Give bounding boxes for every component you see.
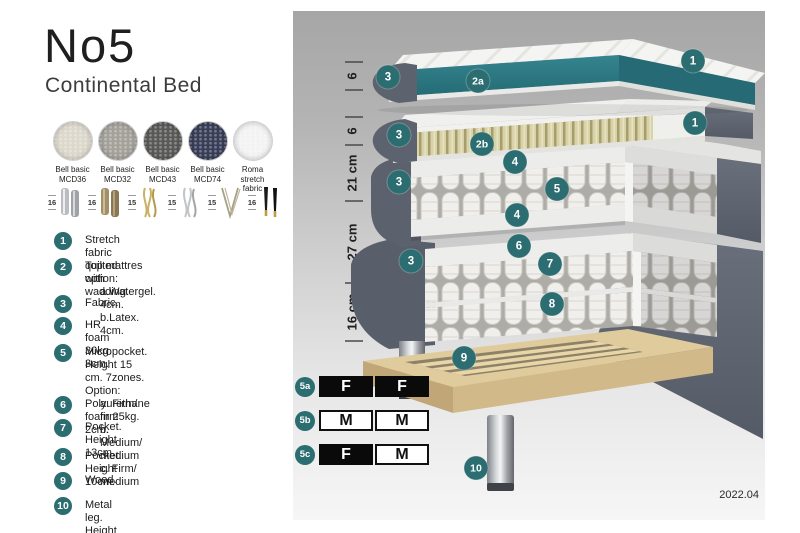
list-item: 9Wood. xyxy=(54,472,117,490)
measurement-label: 21 cm xyxy=(344,155,359,192)
firmness-cell: M xyxy=(375,410,429,431)
firmness-cell: F xyxy=(319,376,373,397)
fabric-swatch: Bell basicMCD74 xyxy=(185,121,230,194)
badge-label: 1 xyxy=(690,56,697,68)
list-item: 10Metal leg. Height 16cm. xyxy=(54,497,117,533)
fabric-swatch: Romastretch fabric xyxy=(230,121,275,194)
page-subtitle: Continental Bed xyxy=(45,74,202,98)
firmness-bar: MM xyxy=(319,410,429,431)
fabric-swatch: Bell basicMCD36 xyxy=(50,121,95,194)
leg-option: 16 xyxy=(46,185,86,219)
badge-label: 4 xyxy=(512,157,519,169)
list-item-number: 7 xyxy=(54,419,72,437)
list-item-number: 4 xyxy=(54,317,72,335)
twisted-gold-leg-icon xyxy=(138,185,164,219)
list-item-number: 1 xyxy=(54,232,72,250)
leg-options-row: 161615151516 xyxy=(46,185,286,219)
badge-label: 3 xyxy=(385,72,391,84)
leg-height: 16 xyxy=(46,193,58,212)
leg-height: 15 xyxy=(206,193,218,212)
firmness-table: 5aFF5bMM5cFM xyxy=(295,376,429,465)
badge-label: 3 xyxy=(408,256,414,268)
firmness-cell: M xyxy=(319,410,373,431)
firmness-row-badge: 5b xyxy=(295,411,315,431)
firmness-cell: F xyxy=(319,444,373,465)
leg-option: 15 xyxy=(126,185,166,219)
firmness-row-badge: 5c xyxy=(295,445,315,465)
list-item-number: 9 xyxy=(54,472,72,490)
list-item-text: Wood. xyxy=(85,472,117,490)
badge-label: 1 xyxy=(692,118,699,130)
firmness-row: 5aFF xyxy=(295,376,429,397)
list-item-number: 3 xyxy=(54,295,72,313)
leg-option: 16 xyxy=(246,185,286,219)
measurement-label: 6 xyxy=(344,127,359,134)
badge-label: 2b xyxy=(476,138,488,150)
list-item-number: 8 xyxy=(54,448,72,466)
list-item: 3Fabric. xyxy=(54,295,119,313)
firmness-row: 5cFM xyxy=(295,444,429,465)
list-item-number: 6 xyxy=(54,396,72,414)
list-item-number: 5 xyxy=(54,344,72,362)
badge-label: 5 xyxy=(554,184,561,196)
leg-height: 15 xyxy=(166,193,178,212)
badge-label: 8 xyxy=(549,299,556,311)
twisted-silver-leg-icon xyxy=(178,185,204,219)
front-metal-leg xyxy=(487,415,514,491)
firmness-bar: FF xyxy=(319,376,429,397)
fabric-swatch: Bell basicMCD43 xyxy=(140,121,185,194)
fabric-swatch-label: Bell basicMCD43 xyxy=(145,165,179,184)
tapered-black-gold-leg-icon xyxy=(258,185,284,219)
badge-label: 3 xyxy=(396,177,402,189)
bed-cutaway-panel: 6621 cm27 cm16 cm xyxy=(293,11,765,520)
fabric-swatch-circle xyxy=(233,121,273,161)
page-title: No5 xyxy=(44,18,136,73)
badge-label: 7 xyxy=(547,259,553,271)
fabric-swatch-circle xyxy=(98,121,138,161)
badge-label: 10 xyxy=(470,462,482,474)
measurement-label: 6 xyxy=(344,72,359,79)
list-item-text: Fabric. xyxy=(85,295,119,313)
hairpin-leg-icon xyxy=(218,185,244,219)
firmness-cell: M xyxy=(375,444,429,465)
leg-option: 15 xyxy=(166,185,206,219)
fabric-swatch-label: Bell basicMCD32 xyxy=(100,165,134,184)
leg-option: 16 xyxy=(86,185,126,219)
list-item-number: 2 xyxy=(54,258,72,276)
leg-height: 15 xyxy=(126,193,138,212)
firmness-bar: FM xyxy=(319,444,429,465)
firmness-cell: F xyxy=(375,376,429,397)
fabric-swatch: Bell basicMCD32 xyxy=(95,121,140,194)
fabric-swatch-circle xyxy=(53,121,93,161)
firmness-row-badge: 5a xyxy=(295,377,315,397)
cylinder-bronze-leg-icon xyxy=(98,185,124,219)
leg-height: 16 xyxy=(86,193,98,212)
fabric-swatch-circle xyxy=(143,121,183,161)
list-item-number: 10 xyxy=(54,497,72,515)
fabric-corner-wrap xyxy=(351,239,435,349)
cylinder-silver-leg-icon xyxy=(58,185,84,219)
leg-height: 16 xyxy=(246,193,258,212)
badge-label: 3 xyxy=(396,130,402,142)
badge-label: 6 xyxy=(516,241,522,253)
list-item-text: Metal leg. Height 16cm. xyxy=(85,497,117,533)
badge-label: 9 xyxy=(461,353,467,365)
fabric-swatch-label: Bell basicMCD36 xyxy=(55,165,89,184)
fabric-swatch-label: Bell basicMCD74 xyxy=(190,165,224,184)
badge-label: 4 xyxy=(514,210,521,222)
fabric-swatch-row: Bell basicMCD36Bell basicMCD32Bell basic… xyxy=(50,121,275,194)
leg-option: 15 xyxy=(206,185,246,219)
revision-date: 2022.04 xyxy=(719,489,759,501)
product-sheet: No5 Continental Bed Bell basicMCD36Bell … xyxy=(0,0,800,533)
firmness-row: 5bMM xyxy=(295,410,429,431)
badge-label: 2a xyxy=(472,75,484,87)
fabric-swatch-circle xyxy=(188,121,228,161)
